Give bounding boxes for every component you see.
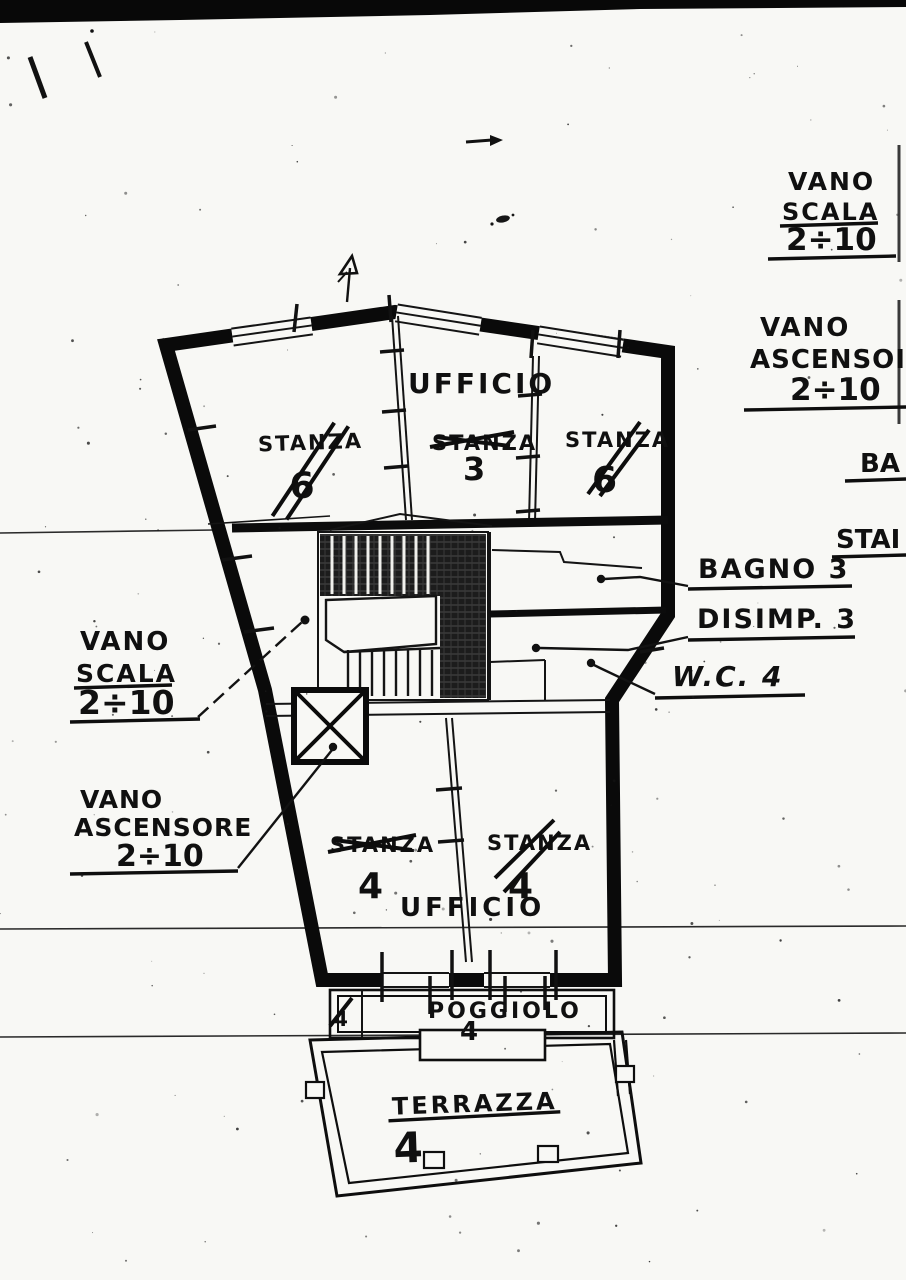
svg-text:2÷10: 2÷10 bbox=[116, 839, 204, 874]
svg-text:ASCENSORE: ASCENSORE bbox=[74, 813, 252, 842]
stairwell bbox=[318, 532, 488, 700]
reference-dot bbox=[587, 659, 595, 667]
floor-plan: UFFICIO STANZA 6 STANZA 3 STANZA 6 BAGNO… bbox=[0, 0, 906, 1280]
svg-text:3: 3 bbox=[463, 450, 485, 488]
svg-text:STANZA: STANZA bbox=[565, 428, 670, 452]
svg-text:VANO: VANO bbox=[788, 167, 875, 196]
room-label-ufficio-bottom: UFFICIO bbox=[400, 893, 545, 923]
reference-dot bbox=[532, 644, 540, 652]
terrace-top-notch bbox=[420, 1030, 545, 1060]
window-bottom-left bbox=[383, 971, 449, 989]
reference-dot bbox=[597, 575, 605, 583]
svg-text:4: 4 bbox=[460, 1017, 478, 1047]
svg-text:2÷10: 2÷10 bbox=[790, 372, 881, 408]
stair-dark-core bbox=[440, 594, 486, 698]
svg-text:BAGNO 3: BAGNO 3 bbox=[698, 554, 849, 585]
svg-text:VANO: VANO bbox=[80, 785, 163, 814]
svg-text:2÷10: 2÷10 bbox=[78, 683, 175, 722]
window-bottom-right bbox=[484, 971, 550, 989]
reference-dot bbox=[301, 616, 310, 625]
svg-text:POGGIOLO: POGGIOLO bbox=[428, 999, 582, 1024]
svg-text:STAI: STAI bbox=[836, 525, 900, 555]
svg-text:VANO: VANO bbox=[760, 313, 850, 343]
reference-dot bbox=[329, 743, 337, 751]
svg-text:DISIMP. 3: DISIMP. 3 bbox=[697, 604, 857, 635]
annotation-fragment-stai: STAI bbox=[832, 525, 906, 557]
svg-text:4: 4 bbox=[358, 866, 383, 907]
svg-text:VANO: VANO bbox=[80, 627, 170, 657]
svg-text:ASCENSOI: ASCENSOI bbox=[750, 345, 906, 375]
scanned-floor-plan-page: UFFICIO STANZA 6 STANZA 3 STANZA 6 BAGNO… bbox=[0, 0, 906, 1280]
svg-text:4: 4 bbox=[393, 1123, 424, 1173]
svg-text:STANZA: STANZA bbox=[258, 429, 364, 457]
room-label: UFFICIO bbox=[408, 367, 555, 400]
svg-text:BA: BA bbox=[860, 449, 900, 479]
stair-landing bbox=[326, 596, 436, 652]
svg-text:UFFICIO: UFFICIO bbox=[400, 893, 545, 923]
svg-text:W.C. 4: W.C. 4 bbox=[672, 660, 784, 693]
room-label-ufficio-top: UFFICIO bbox=[408, 367, 555, 400]
svg-text:2÷10: 2÷10 bbox=[786, 222, 877, 258]
